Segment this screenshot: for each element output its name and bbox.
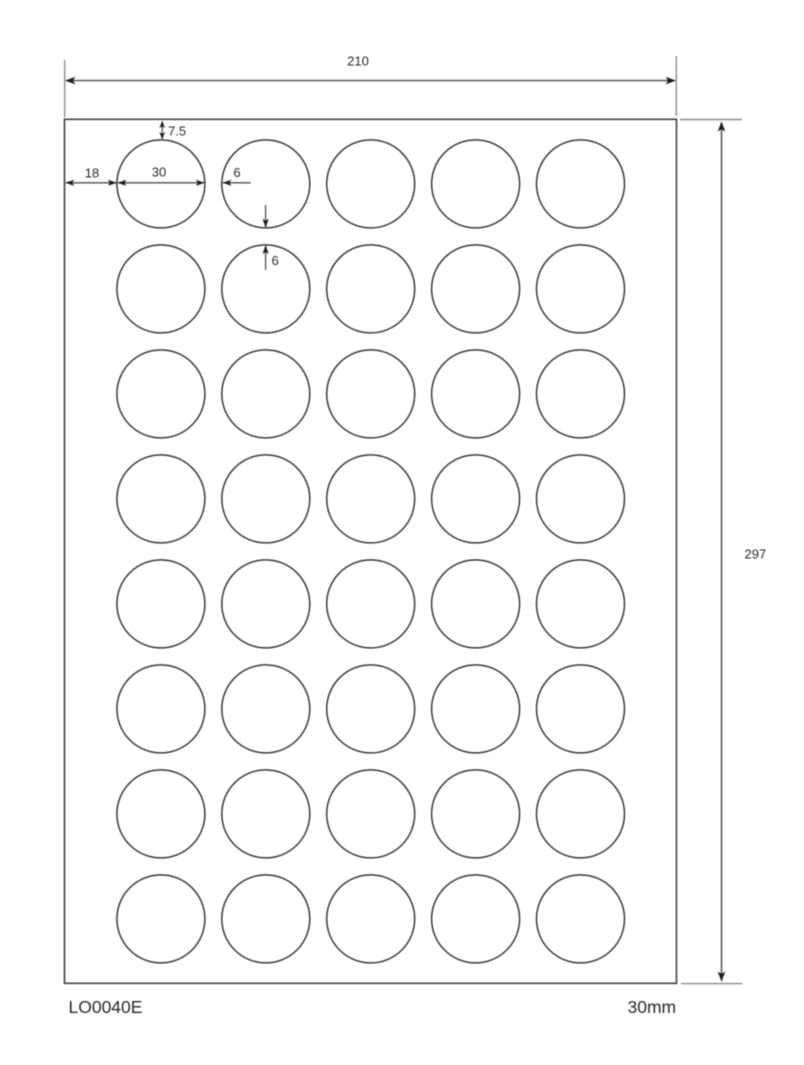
svg-text:18: 18 — [85, 165, 99, 180]
svg-text:6: 6 — [272, 253, 279, 268]
svg-text:LO0040E: LO0040E — [69, 997, 143, 1017]
svg-text:7.5: 7.5 — [168, 124, 186, 139]
svg-text:30mm: 30mm — [628, 997, 677, 1017]
svg-text:297: 297 — [745, 547, 767, 562]
svg-text:6: 6 — [233, 165, 240, 180]
svg-text:30: 30 — [152, 164, 166, 179]
svg-text:210: 210 — [347, 54, 369, 69]
